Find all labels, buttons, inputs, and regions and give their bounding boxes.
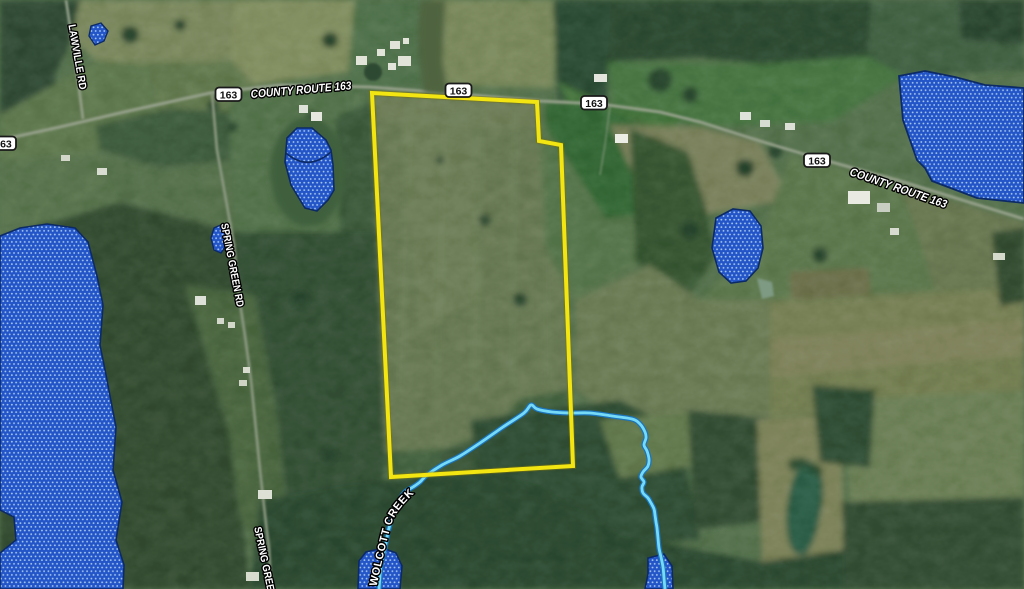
svg-text:163: 163 — [220, 90, 238, 102]
svg-text:163: 163 — [0, 139, 12, 151]
svg-text:163: 163 — [585, 98, 603, 110]
svg-text:163: 163 — [450, 86, 468, 98]
svg-text:163: 163 — [808, 156, 826, 168]
